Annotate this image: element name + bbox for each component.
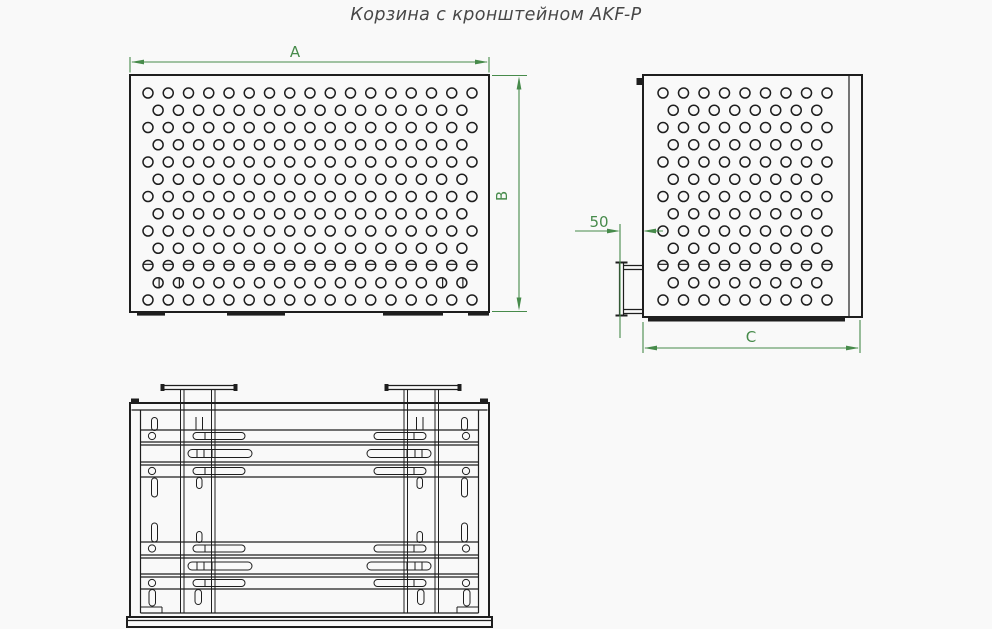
corner-cap-right	[480, 399, 488, 404]
rail-and-slot-details	[141, 389, 479, 613]
technical-drawing-canvas: A B	[0, 0, 992, 629]
dimension-height-b: B	[492, 76, 527, 312]
arrow-down-icon	[517, 298, 522, 311]
drawing-sheet: Корзина с кронштейном AKF-P A	[0, 0, 992, 629]
top-view	[127, 384, 492, 627]
dimension-depth-c: C	[643, 320, 860, 353]
base-plate	[127, 617, 492, 627]
bracket-flange-left	[161, 384, 238, 391]
arrow-up-icon	[517, 77, 522, 90]
side-hole-pattern	[658, 88, 832, 305]
arrow-right-icon	[475, 60, 488, 65]
dim-label-b: B	[493, 191, 511, 201]
front-hole-pattern	[143, 88, 477, 305]
dim-label-50: 50	[589, 213, 608, 231]
arrow-right-icon	[607, 229, 620, 234]
side-bottom-edge	[648, 317, 845, 322]
dim-label-a: A	[290, 43, 301, 61]
bracket-flange-right	[385, 384, 462, 391]
dim-label-c: C	[746, 328, 756, 346]
arrow-left-icon	[131, 60, 144, 65]
arrow-left-icon	[644, 346, 657, 351]
dimension-width-a: A	[130, 43, 489, 73]
front-view: A B	[130, 43, 527, 316]
side-view-outline	[643, 75, 862, 317]
side-top-hook	[637, 78, 644, 85]
arrow-left-icon	[643, 229, 656, 234]
arrow-right-icon	[846, 346, 859, 351]
corner-cap-left	[131, 399, 139, 404]
side-view: 50 C	[575, 75, 862, 353]
